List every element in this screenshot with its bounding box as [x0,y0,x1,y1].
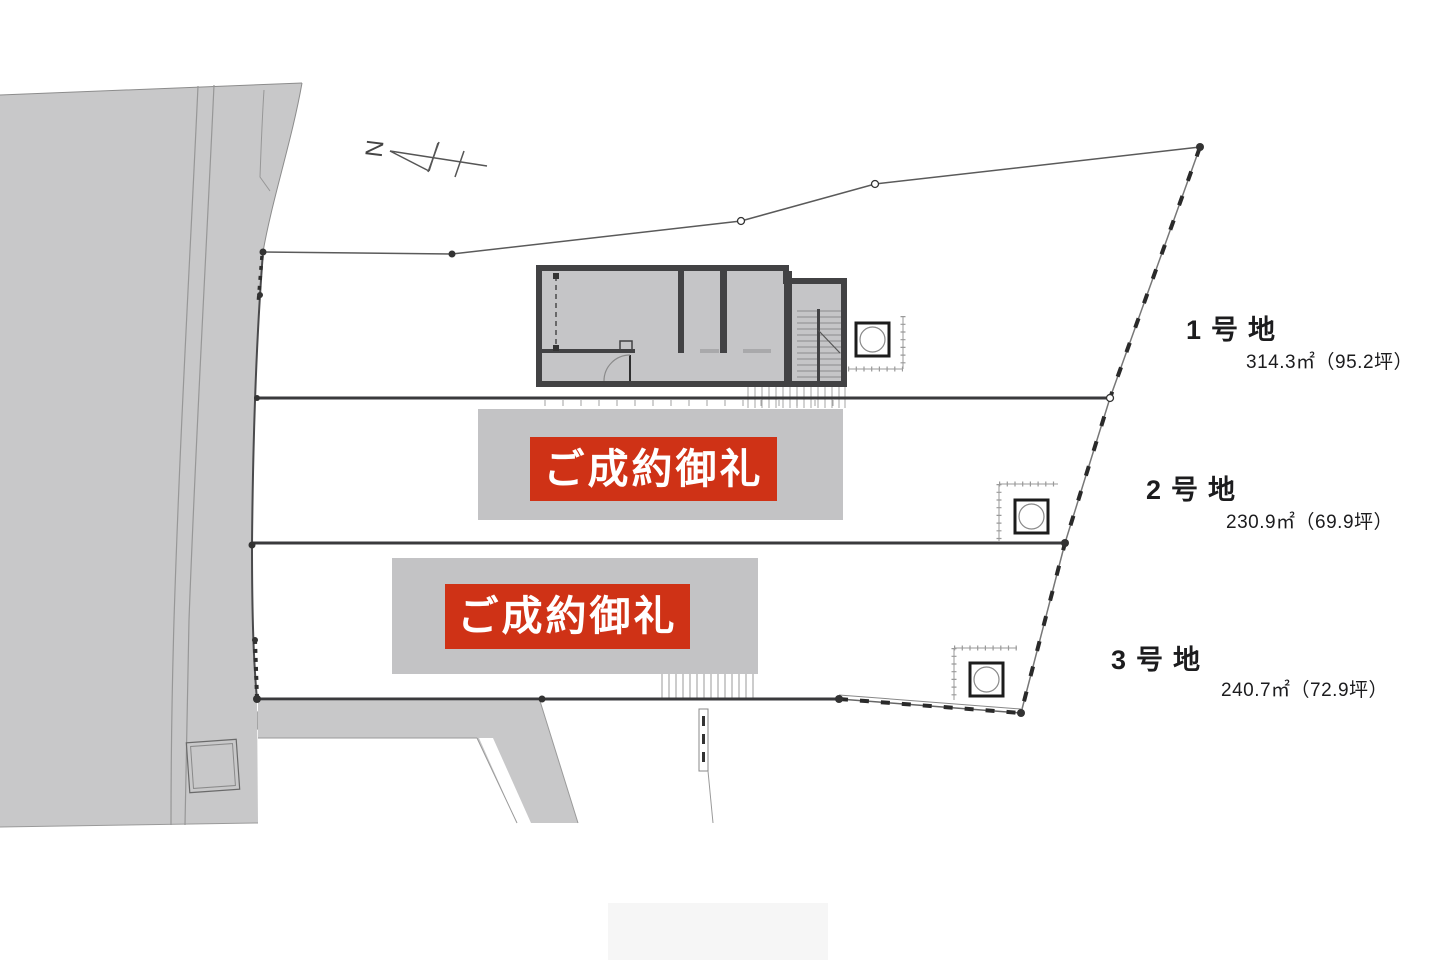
interior-wall-1 [678,271,684,353]
south-road-area [258,701,713,823]
utility-box-lot3 [954,648,1017,700]
stair-stringer [817,309,820,381]
threshold-2 [743,349,771,353]
east-boundary [1021,147,1200,713]
utility-box-lot1 [848,316,903,369]
sold-banner-lot3: ご成約御礼 [445,584,690,649]
gate-post-line [708,771,713,823]
lot3-area: 240.7㎡（72.9坪） [1221,680,1388,703]
west-road-area [0,83,302,827]
lot3-name: 3号地 [1111,644,1210,676]
interior-wall-2 [720,271,727,353]
sold-banner-backdrop-lot2: ご成約御礼 [478,409,843,520]
lot1-area: 314.3㎡（95.2坪） [1246,352,1413,375]
compass-tick-2 [455,151,464,177]
watermark-remnant [608,903,828,960]
dash-end-bottom [553,345,559,351]
hatch-strip-lot3 [662,674,753,698]
dash-end-top [553,273,559,279]
sold-banner-lot3-label: ご成約御礼 [458,596,678,637]
threshold-1 [700,349,719,353]
interior-wall-3 [784,271,792,382]
road-surface [0,83,302,827]
lot2-area: 230.9㎡（69.9坪） [1226,512,1393,535]
lot1-name: 1号地 [1186,314,1285,346]
lot2-name: 2号地 [1146,474,1245,506]
south-road-surface [258,701,578,823]
north-label: N [359,138,388,159]
sold-banner-lot2: ご成約御礼 [530,437,777,501]
north-boundary [263,147,1200,254]
garage-floor-plan [536,265,847,387]
south-boundary-slant-ties [839,699,1021,713]
north-compass: N [359,138,487,177]
sold-banner-lot2-label: ご成約御礼 [544,449,764,490]
building-interior [542,271,841,381]
sold-banner-backdrop-lot3: ご成約御礼 [392,558,758,674]
site-plan-canvas: N ご成約御礼 ご成約御礼 1号地 314.3㎡（95.2坪） 2号地 230.… [0,0,1440,960]
utility-box-lot2 [999,484,1058,541]
east-boundary-ties [1021,147,1200,713]
